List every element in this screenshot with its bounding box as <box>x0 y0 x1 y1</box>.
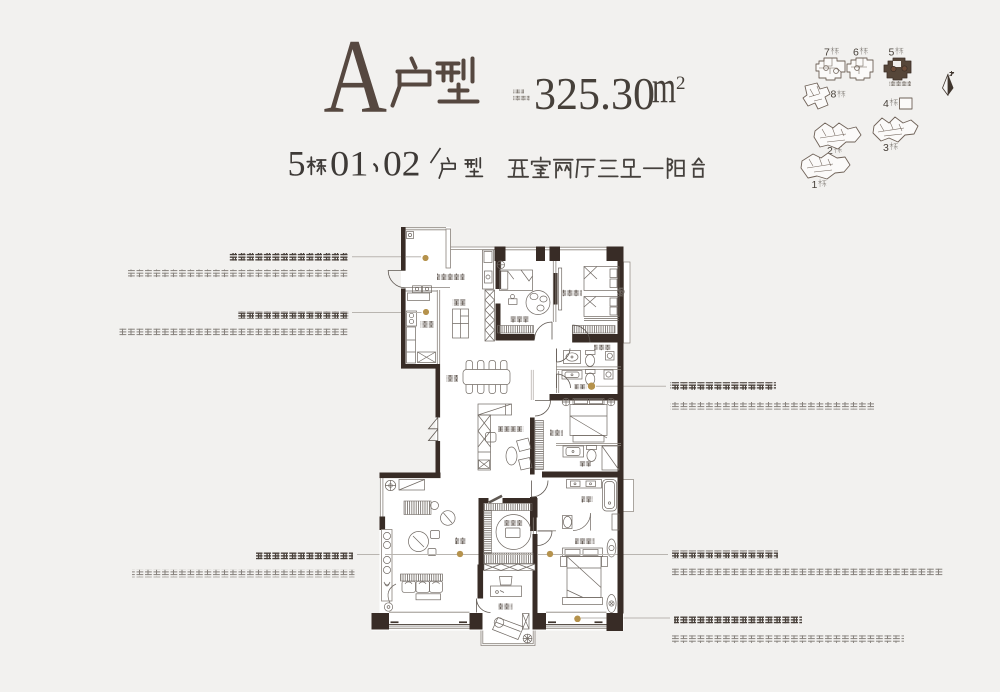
svg-text:5: 5 <box>288 144 306 184</box>
svg-text:2: 2 <box>676 73 686 94</box>
svg-text:1: 1 <box>812 179 818 191</box>
svg-text:m: m <box>652 62 676 113</box>
svg-text:6: 6 <box>853 47 859 59</box>
svg-text:01: 01 <box>330 144 369 184</box>
svg-text:7: 7 <box>824 47 830 59</box>
svg-text:02: 02 <box>383 144 421 184</box>
svg-text:A: A <box>324 18 388 136</box>
svg-text:4: 4 <box>883 98 889 110</box>
svg-text:325.30: 325.30 <box>534 68 655 119</box>
svg-text:5: 5 <box>889 47 895 59</box>
svg-text:3: 3 <box>883 142 889 154</box>
svg-text:8: 8 <box>831 89 837 101</box>
